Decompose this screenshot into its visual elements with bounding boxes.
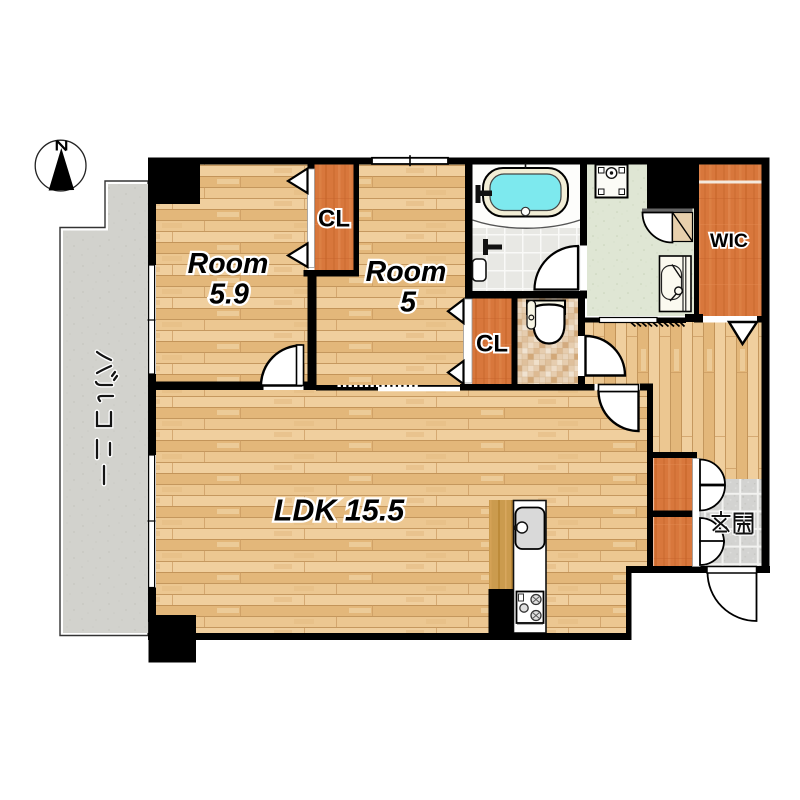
svg-text:5: 5 xyxy=(400,287,417,319)
svg-text:CL: CL xyxy=(476,331,508,358)
svg-text:5.9: 5.9 xyxy=(209,279,249,311)
svg-text:Room: Room xyxy=(188,248,269,280)
svg-text:CL: CL xyxy=(318,206,350,233)
svg-text:Room: Room xyxy=(366,256,447,288)
svg-text:LDK 15.5: LDK 15.5 xyxy=(274,494,406,528)
svg-text:WIC: WIC xyxy=(710,230,748,252)
